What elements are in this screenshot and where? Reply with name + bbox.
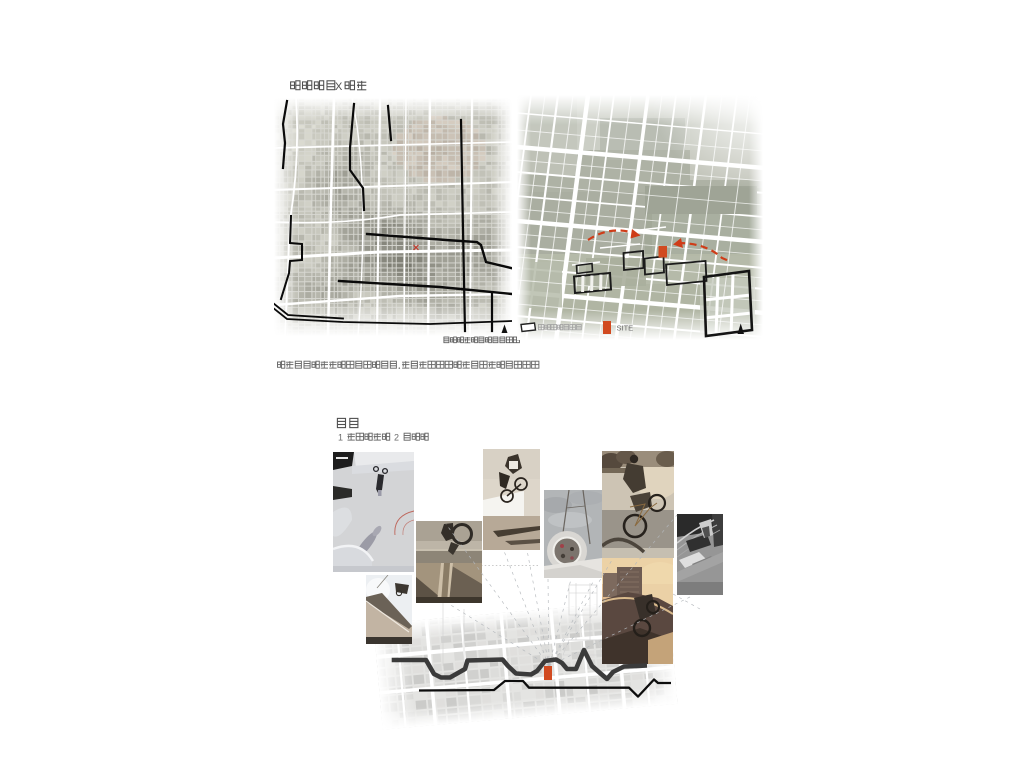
svg-text:2: 2	[394, 433, 399, 443]
svg-text:SITE: SITE	[617, 324, 634, 333]
svg-text:1: 1	[338, 433, 343, 443]
svg-text:X: X	[335, 81, 343, 93]
